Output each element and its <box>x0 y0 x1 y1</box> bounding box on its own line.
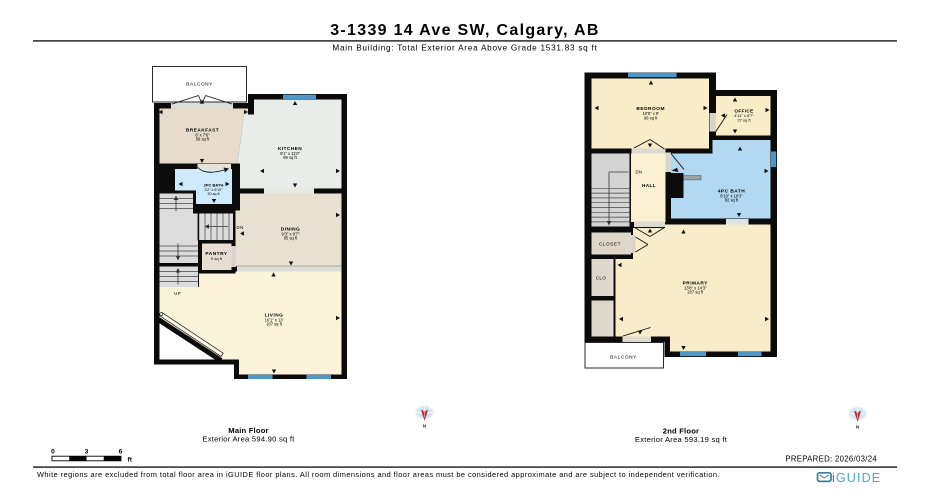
svg-text:20 sq ft: 20 sq ft <box>207 192 219 196</box>
svg-text:HALL: HALL <box>642 183 656 188</box>
svg-text:UP: UP <box>174 291 181 296</box>
svg-text:iGUIDE: iGUIDE <box>832 471 881 485</box>
svg-text:27 sq ft: 27 sq ft <box>737 117 751 122</box>
svg-text:0: 0 <box>51 449 55 456</box>
svg-text:9 sq ft: 9 sq ft <box>211 256 223 261</box>
svg-text:56 sq ft: 56 sq ft <box>196 137 210 142</box>
svg-text:3: 3 <box>85 449 89 456</box>
svg-text:82 sq ft: 82 sq ft <box>725 198 739 203</box>
svg-text:CLOSET: CLOSET <box>599 242 621 247</box>
svg-text:3-1339 14 Ave SW, Calgary, AB: 3-1339 14 Ave SW, Calgary, AB <box>330 22 600 39</box>
svg-text:187 sq ft: 187 sq ft <box>266 322 283 327</box>
svg-text:BALCONY: BALCONY <box>186 82 213 88</box>
svg-text:CLO: CLO <box>596 275 607 280</box>
svg-text:207 sq ft: 207 sq ft <box>687 290 704 295</box>
svg-text:6: 6 <box>119 449 123 456</box>
svg-text:Main Building: Total Exterior: Main Building: Total Exterior Area Above… <box>332 44 597 53</box>
svg-text:Exterior Area 594.90 sq ft: Exterior Area 594.90 sq ft <box>202 434 295 443</box>
svg-text:BALCONY: BALCONY <box>610 354 637 360</box>
svg-text:DN: DN <box>237 225 244 230</box>
svg-text:DN: DN <box>636 170 643 175</box>
svg-text:85 sq ft: 85 sq ft <box>284 236 298 241</box>
svg-text:99 sq ft: 99 sq ft <box>283 155 297 160</box>
svg-text:White regions are excluded fro: White regions are excluded from total fl… <box>37 470 720 479</box>
svg-text:PREPARED: 2026/03/24: PREPARED: 2026/03/24 <box>785 455 877 464</box>
svg-text:96 sq ft: 96 sq ft <box>644 115 658 120</box>
svg-text:Exterior Area 593.19 sq ft: Exterior Area 593.19 sq ft <box>635 435 728 444</box>
svg-text:2PC BATH: 2PC BATH <box>204 183 224 188</box>
